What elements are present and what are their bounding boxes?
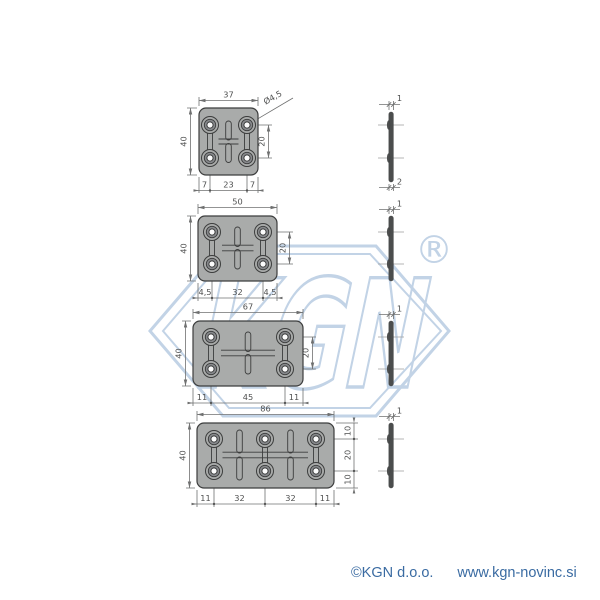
dim-edge-bottom-10: 10 <box>343 474 353 484</box>
dim-edge-right: 7 <box>250 180 255 190</box>
plate-37-top-view: 37 40 20 Ø4,5 7 23 7 <box>179 88 294 193</box>
dim-row-spacing-20: 20 <box>343 450 353 460</box>
dim-hole-diameter: Ø4,5 <box>262 88 284 106</box>
dim-thickness-1: 1 <box>397 406 402 416</box>
dim-hole-span: 23 <box>223 180 233 190</box>
dim-edge-left: 4,5 <box>198 287 211 297</box>
website-link[interactable]: www.kgn-novinc.si <box>457 565 576 581</box>
dim-width-37: 37 <box>223 90 233 100</box>
dim-height-40: 40 <box>174 348 184 358</box>
dim-edge-left: 11 <box>200 493 210 503</box>
dim-height-40: 40 <box>179 243 189 253</box>
plate-86-side-view: 1 <box>378 406 404 489</box>
dim-edge-right: 4,5 <box>263 287 276 297</box>
dim-width-50: 50 <box>232 197 242 207</box>
dim-edge-right: 11 <box>320 493 330 503</box>
dim-hole-span: 32 <box>232 287 242 297</box>
dim-thickness-1: 1 <box>397 199 402 209</box>
dim-hole-span: 45 <box>243 392 253 402</box>
dim-row-spacing-20: 20 <box>278 243 288 253</box>
dim-edge-top-10: 10 <box>343 426 353 436</box>
plate-86-top-view: 86 40 10 20 10 11 32 32 11 <box>178 404 359 508</box>
dim-height-40: 40 <box>178 450 188 460</box>
plate-37-side-view: 1 2 <box>378 93 404 191</box>
dim-edge-left: 7 <box>202 180 207 190</box>
copyright-text: ©KGN d.o.o. <box>351 565 433 581</box>
dim-edge-right: 11 <box>289 392 299 402</box>
dim-height-40: 40 <box>179 136 189 146</box>
dim-width-67: 67 <box>243 302 253 312</box>
dim-edge-left: 11 <box>197 392 207 402</box>
dim-thickness-1: 1 <box>397 304 402 314</box>
dim-hole-span-1: 32 <box>234 493 244 503</box>
dim-base-thickness-2: 2 <box>397 177 402 187</box>
dim-hole-span-2: 32 <box>285 493 295 503</box>
technical-drawing-sheet: 37 40 20 Ø4,5 7 23 7 <box>0 0 600 600</box>
dim-thickness-1: 1 <box>397 93 402 103</box>
plate-67-side-view: 1 <box>378 304 404 387</box>
plate-67-top-view: 67 40 20 11 45 11 <box>174 302 317 407</box>
dim-width-86: 86 <box>260 404 270 414</box>
plate-50-side-view: 1 <box>378 199 404 282</box>
footer: ©KGN d.o.o.www.kgn-novinc.si <box>351 565 577 581</box>
plate-50-top-view: 50 40 20 4,5 32 4,5 <box>179 197 294 302</box>
